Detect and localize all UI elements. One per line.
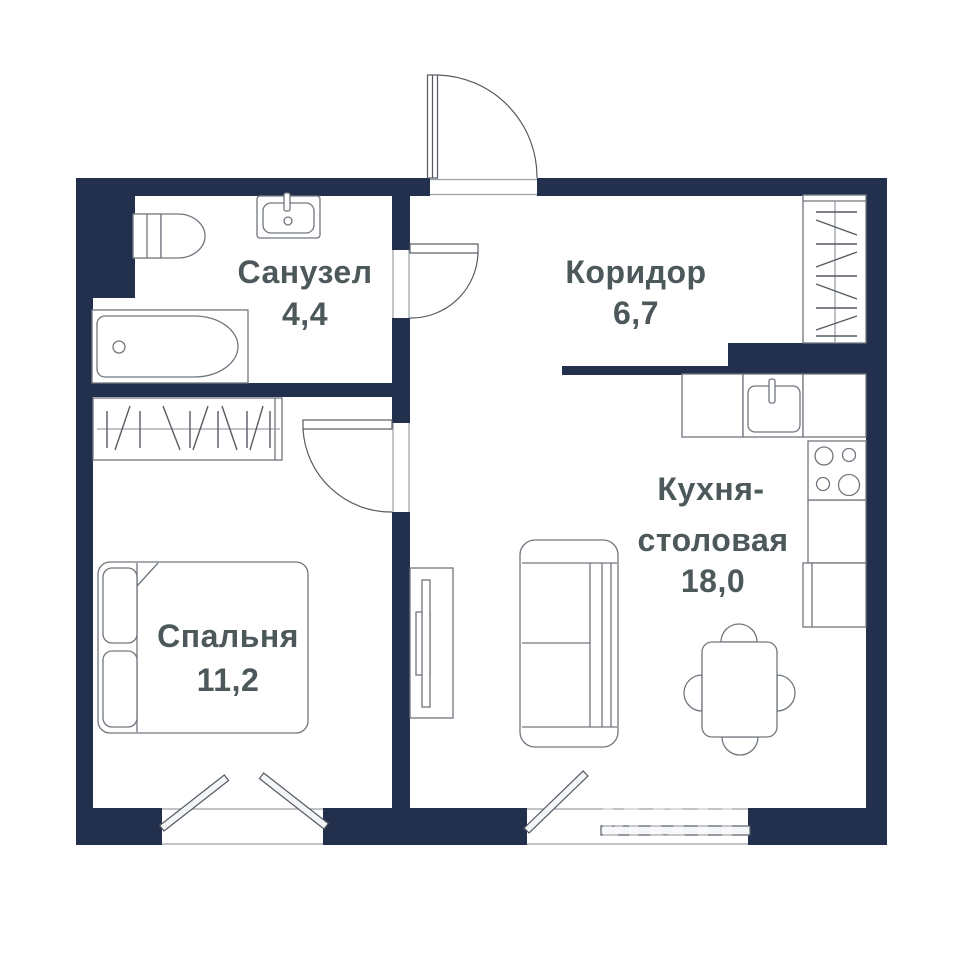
wall-bottom-b (323, 808, 527, 845)
wall-bathroom-pier (76, 196, 135, 298)
chair-right (777, 675, 795, 711)
chair-left (684, 675, 702, 711)
floor-plan: Санузел 4,4 Коридор 6,7 Спальня 11,2 Кух… (0, 0, 960, 960)
wall-bottom-c (748, 808, 887, 845)
floor-plan-drawing (0, 0, 960, 960)
kitchen-area: 18,0 (681, 565, 745, 597)
counter-right-top (803, 374, 866, 437)
bedroom-door (303, 420, 392, 512)
entrance-opening-lines (430, 180, 537, 195)
dining-table (702, 642, 777, 737)
bathroom-door (410, 244, 478, 318)
living-window-sash (524, 771, 588, 833)
wall-middle-a (392, 196, 410, 250)
wall-middle-c (392, 512, 410, 808)
watermark-text: иан (598, 780, 741, 854)
dining-table-set (684, 624, 795, 755)
doors (303, 75, 537, 512)
kitchen-label-line1: Кухня- (657, 473, 764, 505)
bathroom-area: 4,4 (282, 298, 328, 330)
wash-sink-fixture (257, 193, 320, 238)
bathroom-label: Санузел (237, 256, 372, 288)
bedroom-wardrobe (93, 398, 282, 460)
wall-corridor-stub (728, 343, 866, 374)
wall-middle-b (392, 318, 410, 423)
counter-right-mid (808, 500, 866, 563)
bedroom-window-sash-right (259, 773, 328, 829)
bedroom-area: 11,2 (197, 664, 260, 696)
walls (76, 178, 887, 845)
wall-bathroom-south (76, 383, 410, 397)
sofa (520, 540, 618, 747)
bathtub-fixture (92, 310, 248, 383)
wall-bottom-a (76, 808, 162, 845)
bedroom-label: Спальня (157, 620, 299, 652)
counter-corner (682, 374, 743, 437)
wall-right (866, 178, 887, 845)
wall-top-right (537, 178, 887, 196)
wall-top-left (76, 178, 430, 196)
kitchen-label-line2: столовая (638, 524, 789, 556)
bathroom-door-opening-lines (393, 250, 409, 318)
chair-bottom (722, 737, 758, 755)
bedroom-window-sash-left (160, 775, 229, 831)
chair-top (721, 624, 757, 642)
entrance-door (428, 75, 538, 178)
corridor-area: 6,7 (613, 297, 659, 329)
corridor-label: Коридор (565, 256, 706, 288)
kitchen-faucet (769, 379, 775, 403)
stove (808, 441, 866, 500)
corridor-closet (803, 195, 866, 343)
tv-stand (410, 568, 453, 718)
bedroom-door-opening-lines (393, 423, 409, 512)
toilet-fixture (133, 214, 205, 258)
